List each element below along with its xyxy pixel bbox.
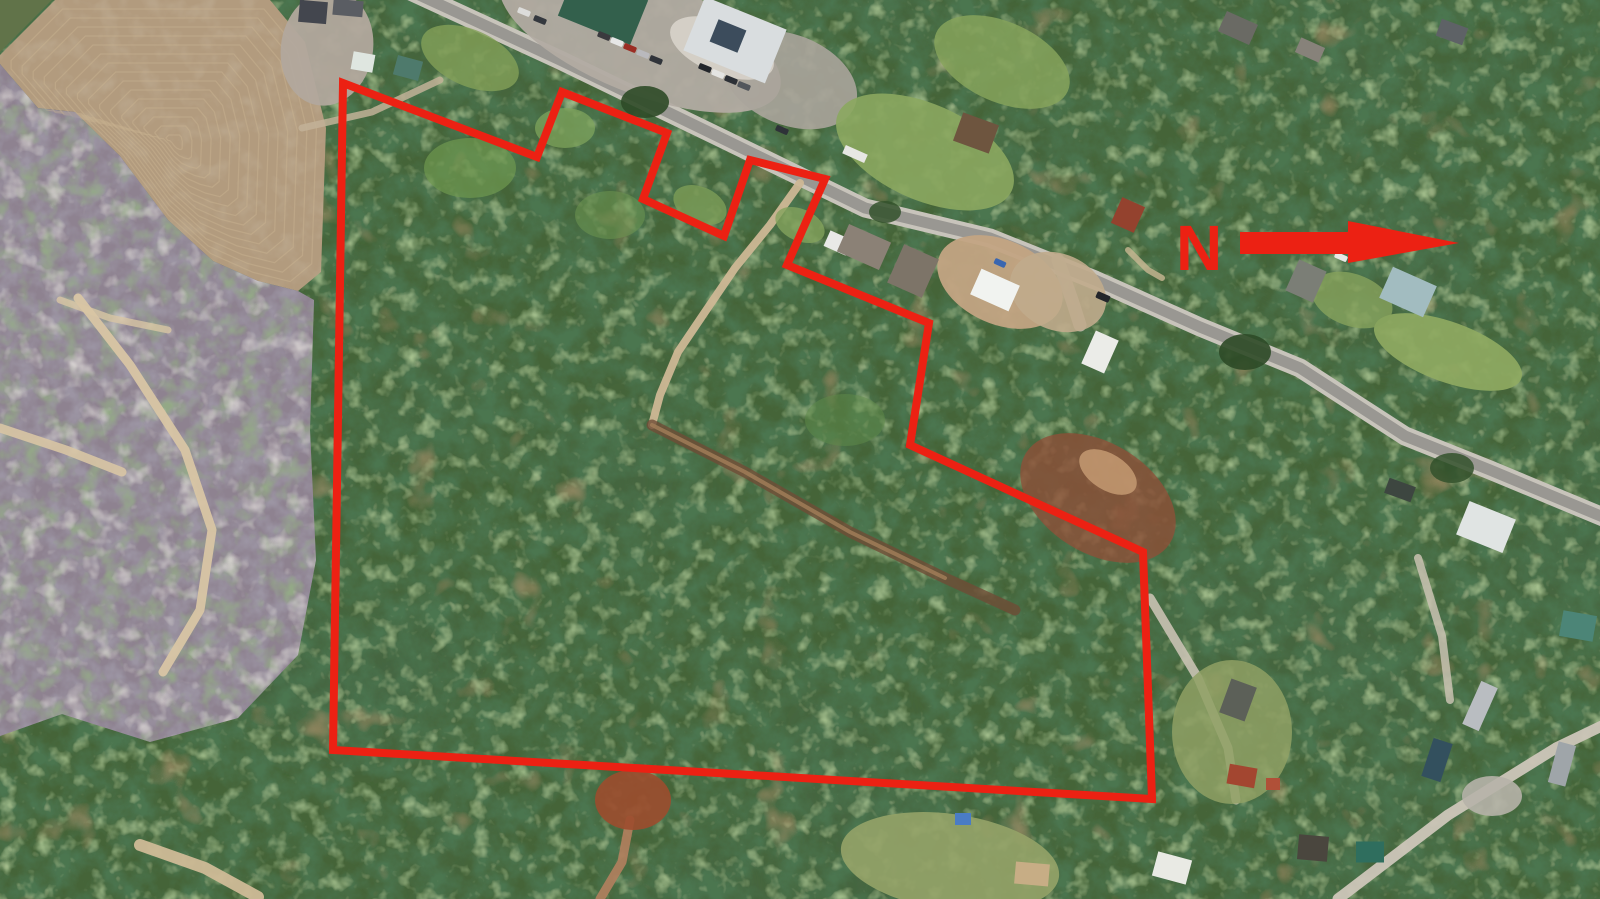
farm-shed-1 bbox=[298, 0, 328, 24]
north-arrow-shaft bbox=[1240, 232, 1352, 254]
house-br-tan bbox=[1014, 862, 1050, 887]
shed-br-red bbox=[1266, 778, 1280, 790]
house-br-dark bbox=[1297, 834, 1329, 862]
house-br-teal bbox=[1356, 842, 1384, 863]
shed-white-upper bbox=[351, 51, 376, 73]
farm-shed-2 bbox=[332, 0, 363, 17]
red-dirt-bottom bbox=[595, 770, 671, 830]
north-label: N bbox=[1176, 212, 1222, 284]
aerial-photo-stage: N bbox=[0, 0, 1600, 899]
gravel-bottom-right bbox=[1462, 776, 1522, 816]
road-tree-2 bbox=[1219, 334, 1271, 370]
road-tree-4 bbox=[869, 201, 901, 223]
deciduous-bright-3 bbox=[575, 191, 645, 239]
deciduous-bright-4 bbox=[805, 394, 885, 446]
road-tree-3 bbox=[1430, 453, 1474, 483]
blue-tarp bbox=[955, 813, 971, 825]
aerial-photo: N bbox=[0, 0, 1600, 899]
road-tree-1 bbox=[621, 86, 669, 118]
